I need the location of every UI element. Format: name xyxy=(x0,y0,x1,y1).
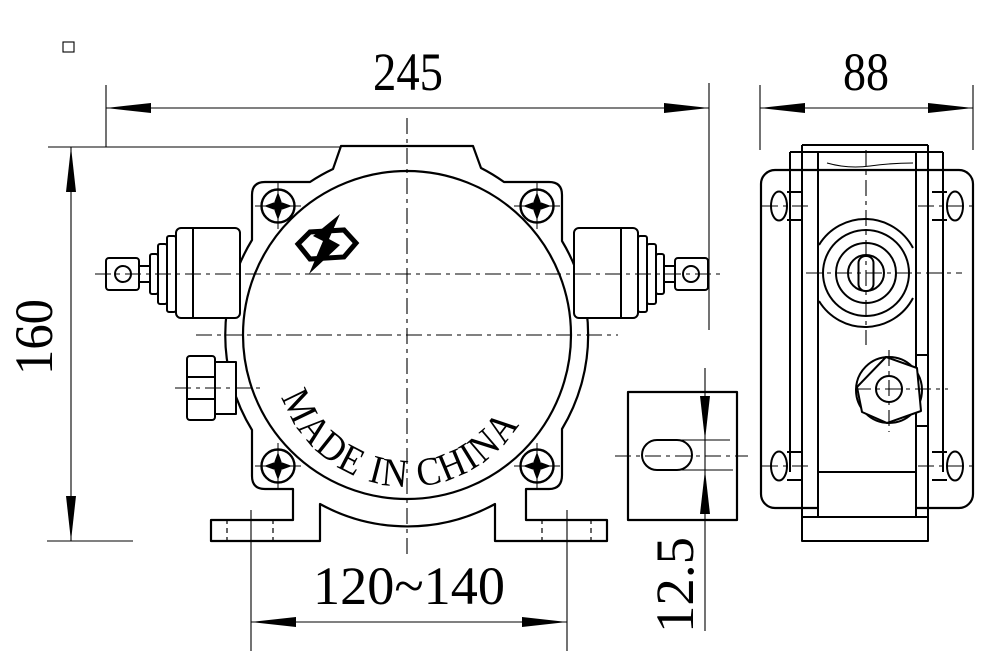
side-bottom-block xyxy=(818,472,916,517)
dim-text-160: 160 xyxy=(4,299,64,375)
detail-slot-hole xyxy=(642,440,692,470)
side-foot-plate xyxy=(802,517,928,541)
side-view xyxy=(761,145,973,541)
slot-detail-view xyxy=(615,392,748,520)
drawing-canvas: MADE IN CHINA xyxy=(0,0,996,671)
dim-text-245: 245 xyxy=(373,42,443,102)
pull-rod-right xyxy=(574,228,708,318)
dim-text-88: 88 xyxy=(843,42,889,102)
rod-cylinder-right xyxy=(574,228,638,318)
pull-rod-left xyxy=(106,228,240,318)
dim-text-120-140: 120~140 xyxy=(313,556,505,616)
technical-drawing: MADE IN CHINA xyxy=(0,0,996,671)
rod-cylinder-left xyxy=(176,228,240,318)
dim-text-12-5: 12.5 xyxy=(645,537,705,633)
revision-mark-square xyxy=(63,42,74,52)
dim-side-depth: 88 xyxy=(760,42,973,150)
